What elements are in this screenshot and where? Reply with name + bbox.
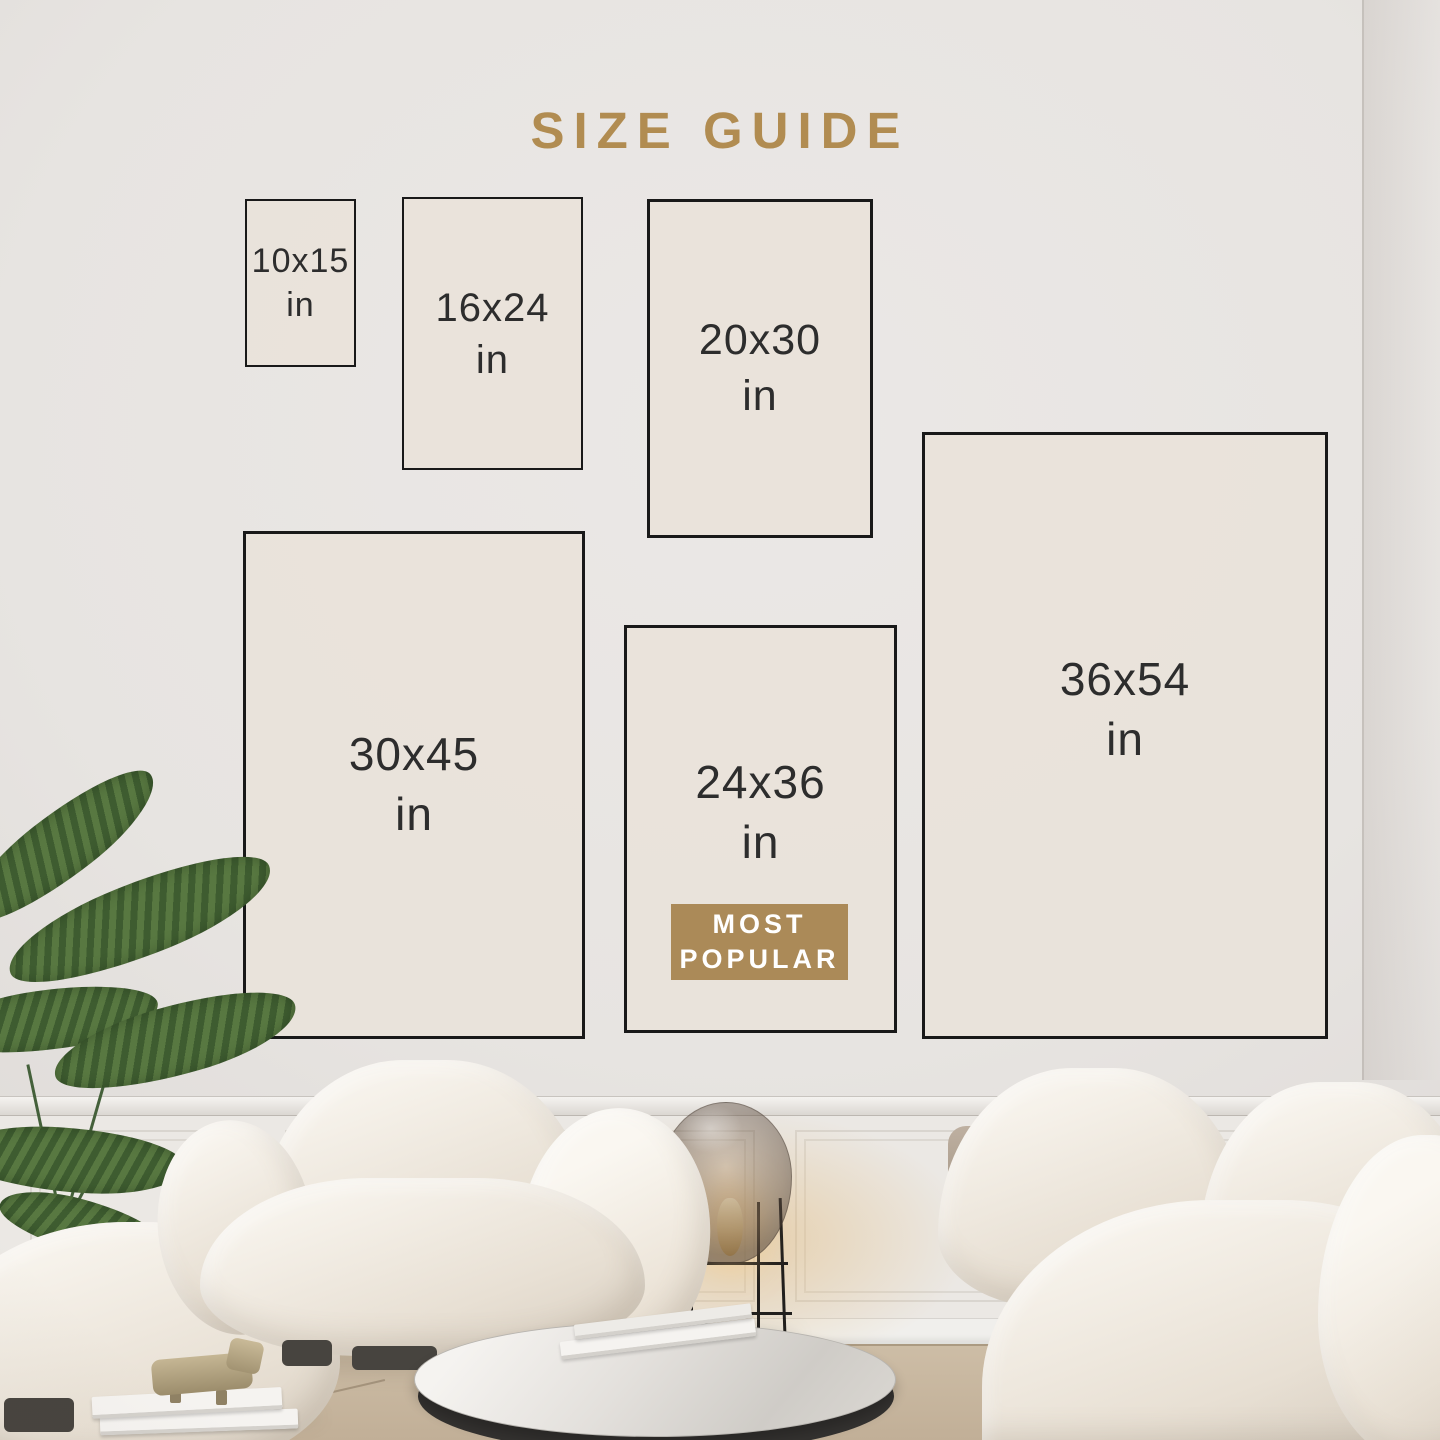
size-label: 16x24 in [436,282,550,386]
wall-corner-shade [1364,0,1440,1080]
figurine-leg [216,1390,227,1405]
size-dimensions: 16x24 [436,282,550,334]
size-dimensions: 36x54 [1060,650,1190,710]
size-dimensions: 10x15 [252,239,350,283]
size-label: 36x54 in [1060,650,1190,770]
size-label: 30x45 in [349,725,479,845]
badge-line-2: POPULAR [679,942,839,977]
size-unit: in [476,334,509,386]
armchair-foot [282,1340,332,1366]
size-box-24x36: 24x36 in MOST POPULAR [624,625,897,1033]
size-guide-mockup-scene: SIZE GUIDE 10x15 in 16x24 in 20x30 in 30… [0,0,1440,1440]
size-unit: in [742,813,780,873]
size-box-10x15: 10x15 in [245,199,356,367]
wooden-figurine-head [225,1337,265,1375]
most-popular-badge: MOST POPULAR [671,904,848,980]
badge-line-1: MOST [713,907,807,942]
size-unit: in [742,369,777,425]
size-unit: in [395,785,433,845]
size-dimensions: 30x45 [349,725,479,785]
size-dimensions: 24x36 [695,753,825,813]
size-box-36x54: 36x54 in [922,432,1328,1039]
size-label: 24x36 in [695,753,825,873]
size-label: 10x15 in [252,239,350,327]
size-unit: in [1106,710,1144,770]
size-label: 20x30 in [699,313,821,425]
pouf-foot [4,1398,74,1432]
size-dimensions: 20x30 [699,313,821,369]
size-box-16x24: 16x24 in [402,197,583,470]
size-box-20x30: 20x30 in [647,199,873,538]
size-box-30x45: 30x45 in [243,531,585,1039]
size-guide-title: SIZE GUIDE [0,101,1440,160]
size-unit: in [286,283,314,327]
